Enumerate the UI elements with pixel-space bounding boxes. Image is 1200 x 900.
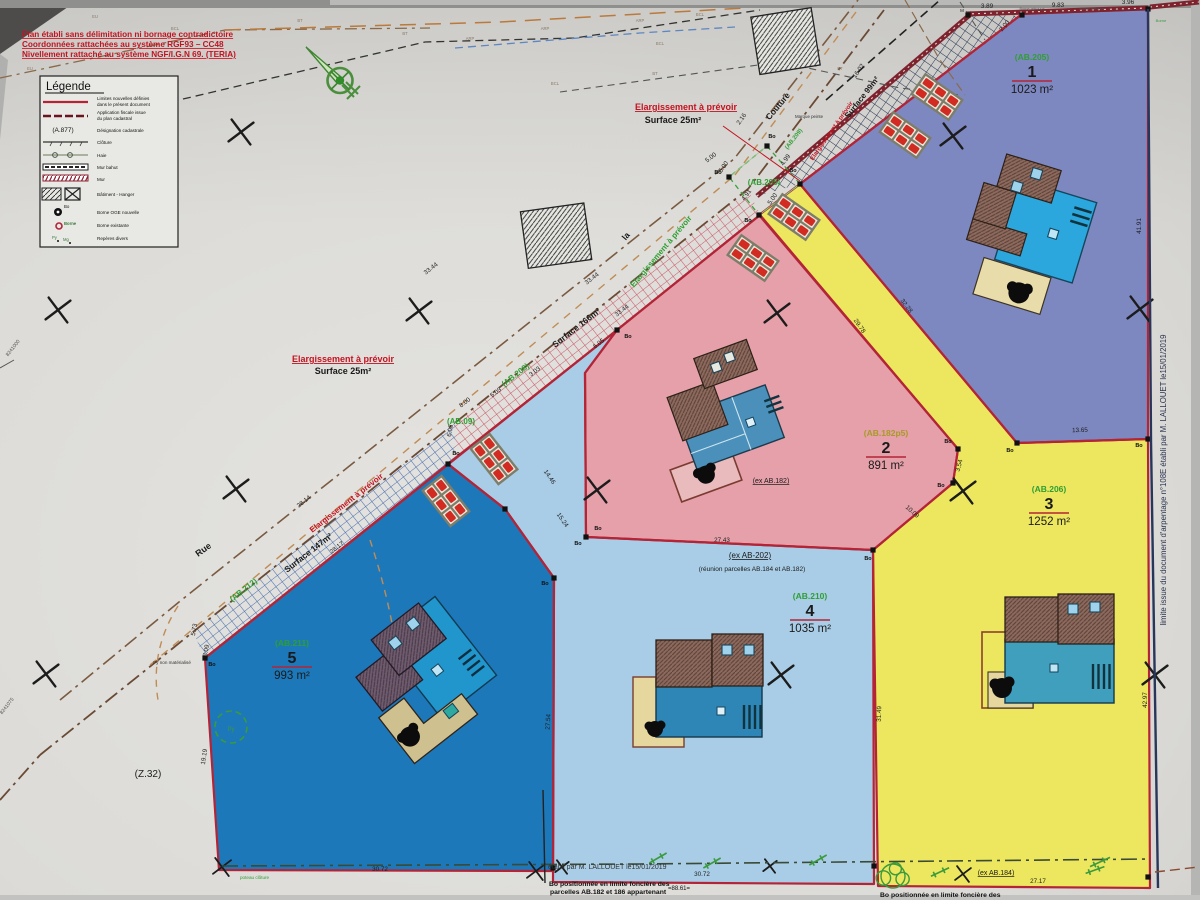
svg-text:Mur: Mur <box>97 177 105 182</box>
svg-text:Bo: Bo <box>452 451 460 457</box>
svg-text:27.17: 27.17 <box>1030 878 1046 885</box>
svg-text:2: 2 <box>882 440 891 457</box>
svg-text:Borne: Borne <box>1156 18 1167 23</box>
svg-text:9.83: 9.83 <box>1052 2 1065 9</box>
svg-text:Plan établi sans délimitation: Plan établi sans délimitation ni bornage… <box>22 30 234 39</box>
svg-text:Bo: Bo <box>937 483 945 489</box>
svg-text:1023 m²: 1023 m² <box>1011 84 1053 96</box>
svg-text:4: 4 <box>806 603 815 620</box>
svg-text:42.97: 42.97 <box>1142 692 1149 708</box>
svg-text:(AB.205): (AB.205) <box>748 178 781 187</box>
svg-text:Bo: Bo <box>64 204 70 209</box>
svg-text:27.43: 27.43 <box>714 537 730 544</box>
svg-text:1252 m²: 1252 m² <box>1028 516 1070 528</box>
svg-text:Surface 25m²: Surface 25m² <box>645 115 702 125</box>
svg-text:(réunion parcelles AB.184 et A: (réunion parcelles AB.184 et AB.182) <box>699 566 806 573</box>
svg-text:Bo: Bo <box>768 134 776 140</box>
svg-text:EU: EU <box>27 66 33 71</box>
svg-text:Bo: Bo <box>864 556 872 562</box>
svg-text:ARP: ARP <box>466 36 475 41</box>
svg-text:Haie: Haie <box>97 153 107 158</box>
svg-text:Mg: Mg <box>63 237 69 242</box>
svg-text:poteau clôture: poteau clôture <box>240 875 270 880</box>
svg-text:Bo: Bo <box>208 662 216 668</box>
svg-text:BCL: BCL <box>551 81 560 86</box>
svg-text:Bo: Bo <box>789 168 797 174</box>
svg-text:(AB.205): (AB.205) <box>1015 52 1050 62</box>
svg-text:(AB.206): (AB.206) <box>1032 484 1067 494</box>
svg-text:ARP: ARP <box>636 18 645 23</box>
svg-text:31.49: 31.49 <box>876 705 884 721</box>
svg-text:Borne: Borne <box>64 221 77 226</box>
svg-text:1: 1 <box>1028 64 1037 81</box>
svg-text:Bo: Bo <box>1135 443 1143 449</box>
svg-text:Bo: Bo <box>624 334 632 340</box>
svg-text:M: M <box>960 8 964 13</box>
svg-text:41.91: 41.91 <box>1136 218 1143 234</box>
svg-text:1035 m²: 1035 m² <box>789 623 831 635</box>
svg-text:BCL: BCL <box>656 41 665 46</box>
svg-text:(AB.182p5): (AB.182p5) <box>864 428 909 438</box>
svg-text:Bo positionnée en limite fonci: Bo positionnée en limite foncière des <box>880 892 1001 899</box>
svg-text:Nivellement rattaché au systèm: Nivellement rattaché au système NGF/I.G.… <box>22 50 236 59</box>
svg-text:(ex AB.182): (ex AB.182) <box>753 478 790 485</box>
svg-text:=88.61=: =88.61= <box>668 886 691 892</box>
svg-text:Mur bahut: Mur bahut <box>97 165 118 170</box>
svg-text:dans le présent document: dans le présent document <box>97 102 151 107</box>
svg-text:Py: Py <box>227 727 234 733</box>
svg-text:3.89: 3.89 <box>981 3 994 10</box>
svg-text:Bo positionnée en limite fonci: Bo positionnée en limite foncière des <box>549 881 670 888</box>
svg-text:30.72: 30.72 <box>694 871 710 878</box>
svg-text:Bo: Bo <box>1006 448 1014 454</box>
svg-text:Borne OGE nouvelle: Borne OGE nouvelle <box>97 210 140 215</box>
svg-text:3.96: 3.96 <box>1122 0 1135 6</box>
svg-text:limite issue du document d'arp: limite issue du document d'arpentage n°1… <box>1159 335 1168 626</box>
svg-text:Elargissement à prévoir: Elargissement à prévoir <box>635 102 738 112</box>
svg-text:(A.877): (A.877) <box>52 127 73 134</box>
svg-text:(ex AB.184): (ex AB.184) <box>978 870 1015 877</box>
svg-text:5: 5 <box>288 650 297 667</box>
svg-text:(AB.210): (AB.210) <box>793 591 828 601</box>
svg-text:993 m²: 993 m² <box>274 670 310 682</box>
svg-text:(Z.32): (Z.32) <box>135 769 162 780</box>
svg-text:Bâtiment - Hanger: Bâtiment - Hanger <box>97 192 135 197</box>
svg-text:parcelles AB.182 et 186 appart: parcelles AB.182 et 186 appartenant <box>550 889 667 896</box>
svg-text:Bo: Bo <box>744 218 752 224</box>
svg-text:établi par M. LALLOUET le15/01: établi par M. LALLOUET le15/01/2019 <box>548 864 667 871</box>
svg-text:Coordonnées rattachées au syst: Coordonnées rattachées au système RGF93 … <box>22 40 224 49</box>
svg-text:Limites nouvelles définies: Limites nouvelles définies <box>97 96 150 101</box>
svg-text:BCL: BCL <box>696 12 705 17</box>
svg-text:EU: EU <box>92 14 98 19</box>
svg-text:Bo: Bo <box>944 439 952 445</box>
svg-text:Surface 25m²: Surface 25m² <box>315 366 372 376</box>
svg-text:ARP: ARP <box>541 26 550 31</box>
svg-text:27.54: 27.54 <box>544 713 552 730</box>
svg-text:Py non matérialisé: Py non matérialisé <box>153 660 191 665</box>
svg-text:Bo: Bo <box>574 541 582 547</box>
svg-text:3: 3 <box>1045 496 1054 513</box>
svg-text:(ex AB-202): (ex AB-202) <box>729 551 772 560</box>
svg-text:Borne existante: Borne existante <box>97 223 129 228</box>
svg-text:Légende: Légende <box>46 81 91 93</box>
svg-text:BT: BT <box>837 66 843 71</box>
svg-text:Borne retrouvé: Borne retrouvé <box>1019 7 1044 11</box>
svg-text:30.72: 30.72 <box>372 866 388 873</box>
svg-text:Borne retrouvé: Borne retrouvé <box>1079 7 1104 11</box>
svg-text:Clôture: Clôture <box>97 140 112 145</box>
svg-text:Repères divers: Repères divers <box>97 236 129 241</box>
svg-text:du plan cadastral: du plan cadastral <box>97 116 132 121</box>
svg-text:Bo: Bo <box>541 581 549 587</box>
svg-text:BT: BT <box>652 71 658 76</box>
svg-text:Marque peinte: Marque peinte <box>795 114 824 119</box>
svg-text:13.65: 13.65 <box>1072 427 1088 435</box>
svg-text:Désignation cadastrale: Désignation cadastrale <box>97 128 144 133</box>
svg-text:BT: BT <box>297 18 303 23</box>
svg-text:Elargissement à prévoir: Elargissement à prévoir <box>292 354 395 364</box>
svg-text:Application fiscale issue: Application fiscale issue <box>97 110 146 115</box>
svg-text:891 m²: 891 m² <box>868 460 904 472</box>
svg-text:Bo: Bo <box>594 526 602 532</box>
svg-text:(AB.211): (AB.211) <box>275 638 309 648</box>
svg-text:BT: BT <box>402 31 408 36</box>
